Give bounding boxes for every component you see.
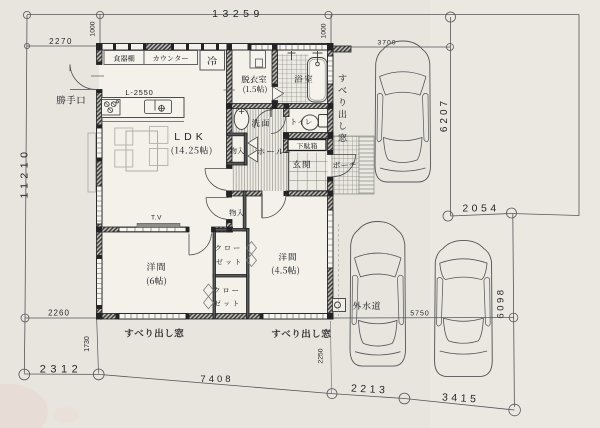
svg-text:2250: 2250 [318, 348, 325, 363]
svg-text:1000: 1000 [321, 23, 328, 38]
svg-text:2312: 2312 [40, 364, 82, 376]
svg-text:7408: 7408 [200, 374, 233, 385]
svg-text:2270: 2270 [49, 37, 73, 46]
svg-text:2054: 2054 [462, 203, 499, 215]
svg-text:11210: 11210 [19, 148, 31, 199]
svg-text:5750: 5750 [410, 311, 430, 318]
svg-text:3415: 3415 [442, 392, 480, 406]
svg-text:2260: 2260 [48, 309, 70, 318]
svg-text:2213: 2213 [351, 383, 389, 397]
svg-text:LDK: LDK [174, 131, 206, 143]
svg-text:1730: 1730 [84, 336, 91, 352]
svg-text:T.V: T.V [151, 215, 162, 222]
svg-text:6207: 6207 [439, 98, 450, 132]
svg-text:L-2550: L-2550 [125, 88, 153, 97]
svg-text:1000: 1000 [90, 21, 97, 36]
svg-text:13259: 13259 [212, 8, 264, 20]
svg-text:6098: 6098 [496, 287, 507, 318]
